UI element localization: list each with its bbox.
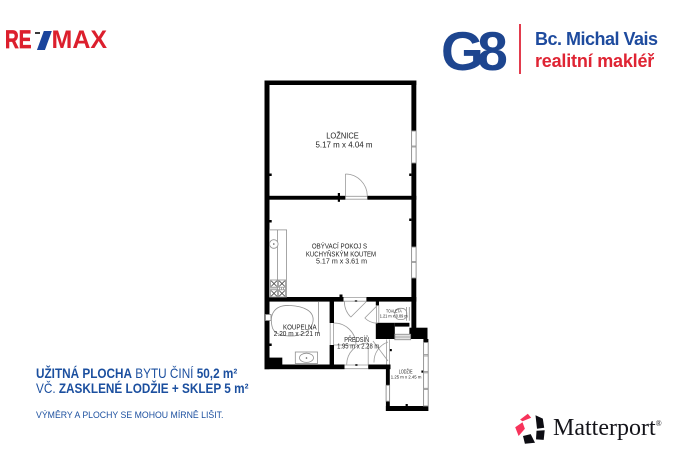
svg-text:5.17 m x 4.04 m: 5.17 m x 4.04 m (316, 141, 373, 150)
svg-text:2.20 m x 2.21 m: 2.20 m x 2.21 m (274, 329, 320, 338)
svg-text:1.95 m x 2.28 m: 1.95 m x 2.28 m (337, 341, 379, 350)
svg-text:5.17 m x 3.61 m: 5.17 m x 3.61 m (316, 257, 367, 266)
svg-text:1.21 m x 0.89 m: 1.21 m x 0.89 m (380, 314, 408, 319)
svg-text:1.25 m x 2.45 m: 1.25 m x 2.45 m (391, 375, 422, 380)
svg-text:LOŽNICE: LOŽNICE (326, 132, 359, 141)
